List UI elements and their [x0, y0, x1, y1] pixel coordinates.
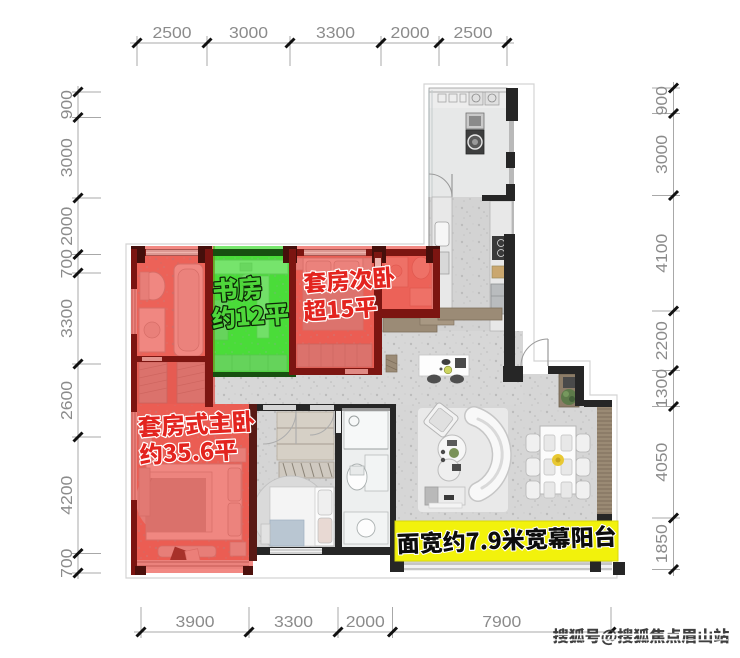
svg-text:2000: 2000: [346, 613, 385, 631]
svg-text:2600: 2600: [58, 381, 76, 420]
svg-text:2500: 2500: [453, 24, 492, 42]
svg-text:1850: 1850: [653, 524, 671, 563]
svg-text:3300: 3300: [316, 24, 355, 42]
svg-text:900: 900: [653, 86, 671, 115]
svg-text:4200: 4200: [58, 476, 76, 515]
svg-text:4100: 4100: [653, 234, 671, 273]
svg-text:3000: 3000: [58, 138, 76, 177]
svg-text:3300: 3300: [274, 613, 313, 631]
svg-text:700: 700: [58, 549, 76, 578]
svg-text:4050: 4050: [653, 443, 671, 482]
svg-text:3900: 3900: [175, 613, 214, 631]
svg-text:2000: 2000: [58, 207, 76, 246]
svg-text:2500: 2500: [152, 24, 191, 42]
svg-text:700: 700: [58, 249, 76, 278]
svg-text:7900: 7900: [482, 613, 521, 631]
svg-text:1300: 1300: [653, 369, 671, 408]
svg-text:2000: 2000: [390, 24, 429, 42]
svg-text:2200: 2200: [653, 321, 671, 360]
svg-text:900: 900: [58, 90, 76, 119]
svg-text:3300: 3300: [58, 299, 76, 338]
svg-text:3000: 3000: [653, 135, 671, 174]
svg-text:3000: 3000: [229, 24, 268, 42]
